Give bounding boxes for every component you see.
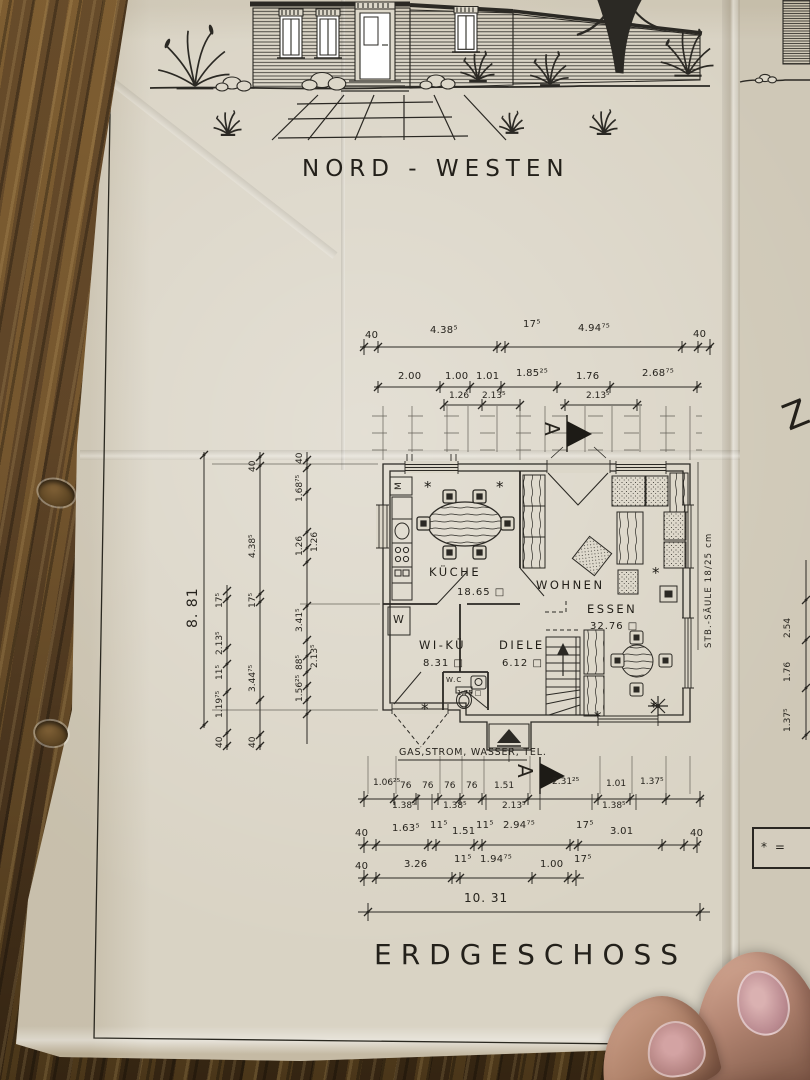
dim-label: 1.76 — [784, 662, 793, 682]
legend-box: * = — [752, 827, 810, 869]
dim-label: 2.00 — [398, 372, 421, 382]
dim-label: 1.26 — [296, 536, 305, 556]
dim-label: 76 — [422, 782, 433, 791]
dim-label: 2.31²⁵ — [552, 778, 579, 787]
fixture-label-w: W — [393, 614, 404, 625]
elevation-drawing — [150, 0, 810, 140]
dim-label: 40 — [355, 862, 368, 872]
dim-label: 1.26 — [449, 392, 469, 401]
floorplan: * * * * * * — [376, 447, 698, 762]
column-marker: * — [424, 478, 432, 496]
dim-label: 2.54 — [784, 618, 793, 638]
dim-label: 76 — [400, 782, 411, 791]
dim-label: 1.94⁷⁵ — [480, 855, 512, 865]
fold-crease-horizontal — [80, 450, 740, 460]
dim-label: 40 — [216, 737, 225, 748]
column-marker: * — [652, 564, 660, 582]
dim-label: 76 — [466, 782, 477, 791]
dim-label: 2.13⁵ — [482, 392, 506, 401]
kitchen-table — [417, 490, 514, 559]
legend-text: * = — [761, 841, 787, 853]
walkway — [272, 95, 506, 140]
dim-label: 4.94⁷⁵ — [578, 324, 610, 334]
dim-label: 2.94⁷⁵ — [503, 821, 535, 831]
dim-label: 1.51 — [494, 782, 514, 791]
dim-label: 4.38⁵ — [430, 326, 458, 336]
utilities-note: GAS,STROM, WASSER, TEL. — [399, 748, 547, 758]
dim-label: 40 — [690, 829, 703, 839]
dim-label: 1.01 — [476, 372, 499, 382]
dimension-lines-left — [200, 451, 380, 750]
room-area-wc: 1.75 □ — [457, 690, 481, 697]
room-label-wc: W.C — [446, 677, 462, 684]
dim-label: 4.38⁵ — [249, 534, 258, 558]
dim-label: 2.13⁵ — [311, 644, 320, 668]
section-marker-top-letter: A — [542, 422, 562, 436]
dim-label: 2.13⁵ — [216, 631, 225, 655]
dim-label: 17⁵ — [249, 593, 258, 608]
column-marker: * — [650, 698, 658, 716]
dim-label: 1.38⁵ — [443, 802, 467, 811]
overall-width-label: 10. 31 — [464, 892, 508, 904]
dim-label: 3.01 — [610, 827, 633, 837]
dim-label: 2.68⁷⁵ — [642, 369, 674, 379]
dim-label: 40 — [365, 331, 378, 341]
column-note: STB.-SÄULE 18/25 cm — [705, 532, 714, 648]
dim-label: 1.51 — [452, 827, 475, 837]
shade-right-of-fold — [738, 0, 810, 1080]
floorplan-title: ERDGESCHOSS — [374, 941, 687, 969]
room-label-wohnen: WOHNEN — [536, 580, 605, 592]
dim-label: 40 — [249, 737, 258, 748]
column-marker: * — [421, 700, 429, 718]
room-label-essen: ESSEN — [587, 604, 637, 616]
dim-label: 1.01 — [606, 780, 626, 789]
dim-label: 1.76 — [576, 372, 599, 382]
section-marker-flags — [540, 415, 592, 794]
room-label-diele: DIELE — [499, 640, 545, 652]
column-marker: * — [594, 708, 602, 726]
dim-label: 1.56²⁵ — [296, 675, 305, 702]
hole-punch-top — [35, 475, 78, 510]
stairs — [545, 600, 580, 715]
plant — [648, 696, 668, 716]
tree — [577, 0, 662, 73]
edge-partial-letter: Z — [778, 395, 810, 438]
section-marker-bottom-letter: A — [515, 764, 535, 778]
dim-label: 11⁵ — [216, 665, 225, 680]
room-area-kueche: 18.65 □ — [457, 588, 505, 598]
room-area-essen: 32.76 □ — [590, 622, 638, 632]
dim-label: 17⁵ — [523, 320, 541, 330]
dim-label: 40 — [296, 453, 305, 464]
dim-label: 1.37⁵ — [784, 708, 793, 732]
dim-label: 88⁵ — [296, 655, 305, 670]
dim-label: 17⁵ — [576, 821, 594, 831]
fixture-label-m: M — [395, 482, 404, 490]
dim-label: 1.00 — [445, 372, 468, 382]
dim-label: 2.13⁵ — [586, 392, 610, 401]
dim-label: 1.37⁵ — [640, 778, 664, 787]
dim-label: 17⁵ — [574, 855, 592, 865]
paper-sheet: * * * * * * — [0, 0, 810, 1080]
dim-label: 1.68⁷⁵ — [296, 475, 305, 502]
dim-label: 1.38⁵ — [392, 802, 416, 811]
dim-label: 11⁵ — [476, 821, 494, 831]
dim-label: 2.13⁵ — [502, 802, 526, 811]
dim-label: 1.06²⁵ — [373, 779, 400, 788]
dim-label: 3.44⁷⁵ — [249, 665, 258, 692]
entry-door — [341, 2, 409, 91]
fold-crease-vertical-mid — [341, 0, 345, 470]
wardrobe — [523, 475, 545, 568]
room-label-wikue: WI-KÜ — [419, 640, 466, 652]
room-area-wikue: 8.31 □ — [423, 659, 464, 669]
dining-set — [584, 630, 672, 716]
dim-label: 40 — [693, 330, 706, 340]
column-marker: * — [496, 478, 504, 496]
dim-label: 3.26 — [404, 860, 427, 870]
dim-label: 1.00 — [540, 860, 563, 870]
photo-of-blueprint: * * * * * * — [0, 0, 810, 1080]
fold-crease-vertical-right — [722, 0, 740, 1080]
kitchen-counter — [388, 477, 412, 635]
construction-grid — [372, 406, 702, 460]
dim-label: 1.38⁵ — [602, 802, 626, 811]
adjacent-sheet-elevation — [740, 0, 810, 83]
overall-height-label: 8. 81 — [186, 587, 200, 628]
dim-label: 76 — [444, 782, 455, 791]
crease-diagonal-topleft — [73, 49, 338, 258]
dim-label: 17⁵ — [216, 593, 225, 608]
room-label-kueche: KÜCHE — [429, 567, 481, 579]
dim-label: 1.19⁷⁵ — [216, 691, 225, 718]
dim-label: 1.63⁵ — [392, 824, 420, 834]
room-area-diele: 6.12 □ — [502, 659, 543, 669]
dim-label: 1.85²⁵ — [516, 369, 548, 379]
dim-label: 40 — [355, 829, 368, 839]
dim-label: 3.41⁵ — [296, 608, 305, 632]
dim-label: 40 — [249, 461, 258, 472]
dimension-line-right-edge — [802, 560, 810, 740]
dim-label: 11⁵ — [430, 821, 448, 831]
dim-label: 11⁵ — [454, 855, 472, 865]
dim-label: 1.26 — [311, 532, 320, 552]
elevation-title: NORD - WESTEN — [302, 158, 570, 181]
